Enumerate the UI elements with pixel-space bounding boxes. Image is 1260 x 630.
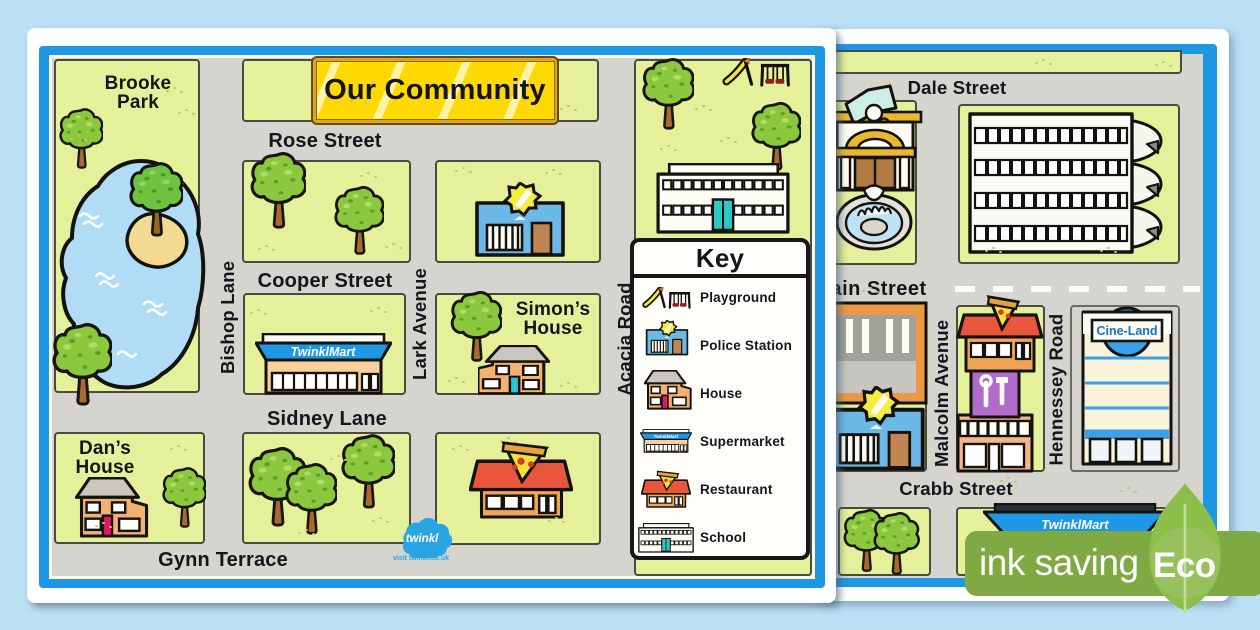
svg-text:twinkl: twinkl [406,533,439,545]
svg-text:Cine-Land: Cine-Land [1096,324,1157,338]
svg-text:TwinklMart: TwinklMart [1041,517,1109,532]
